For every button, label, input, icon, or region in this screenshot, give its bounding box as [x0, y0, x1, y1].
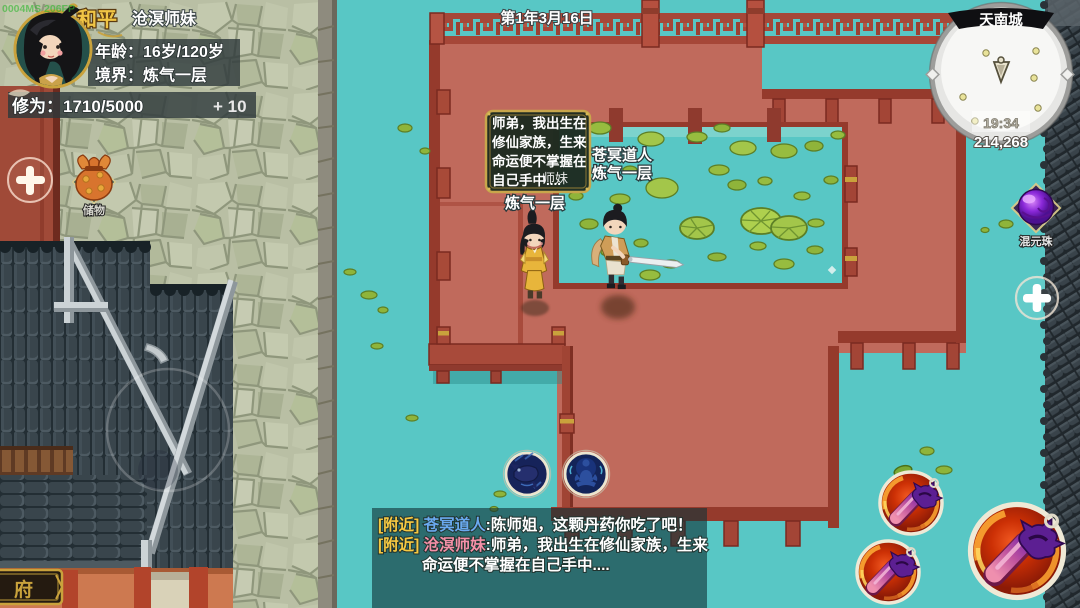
svg-text:自己手中....: 自己手中.... [492, 172, 561, 188]
svg-text:年龄：16岁/120岁: 年龄：16岁/120岁 [95, 42, 224, 61]
svg-text:第1年3月16日: 第1年3月16日 [500, 9, 593, 27]
svg-text:[附近] 沧溟师妹:师弟，我出生在修仙家族，生来: [附近] 沧溟师妹:师弟，我出生在修仙家族，生来 [378, 535, 708, 554]
svg-text:天南城: 天南城 [979, 11, 1023, 29]
svg-text:+ 10: + 10 [213, 97, 247, 116]
svg-text:师弟，我出生在: 师弟，我出生在 [492, 115, 587, 131]
svg-text:府: 府 [14, 578, 33, 601]
svg-text:储物: 储物 [83, 203, 105, 217]
svg-text:沧溟师妹: 沧溟师妹 [132, 9, 197, 28]
svg-text:命运便不掌握在自己手中....: 命运便不掌握在自己手中.... [421, 555, 610, 574]
svg-text:混元珠: 混元珠 [1020, 234, 1054, 248]
svg-text:19:34: 19:34 [983, 115, 1019, 131]
svg-text:苍冥道人: 苍冥道人 [591, 146, 653, 164]
svg-text:[附近] 苍冥道人:陈师姐，这颗丹药你吃了吧！: [附近] 苍冥道人:陈师姐，这颗丹药你吃了吧！ [378, 515, 692, 534]
svg-text:0004MS 206FP: 0004MS 206FP [2, 3, 75, 15]
svg-text:炼气一层: 炼气一层 [505, 194, 565, 212]
svg-text:炼气一层: 炼气一层 [592, 164, 652, 182]
svg-text:214,268: 214,268 [974, 134, 1028, 151]
svg-text:命运便不掌握在: 命运便不掌握在 [491, 153, 587, 169]
svg-text:修为：1710/5000: 修为：1710/5000 [11, 96, 143, 116]
svg-text:修仙家族，生来: 修仙家族，生来 [491, 134, 587, 150]
svg-text:境界：炼气一层: 境界：炼气一层 [95, 66, 207, 85]
